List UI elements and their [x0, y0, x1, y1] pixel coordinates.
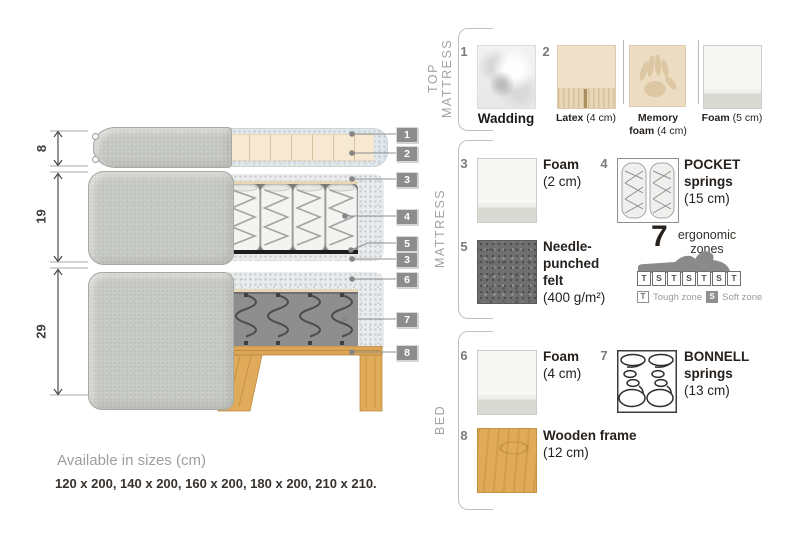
pocket-label-line2: springs	[684, 173, 740, 190]
foam-5cm-caption: Foam (5 cm)	[692, 112, 772, 125]
foam-2cm-image	[477, 158, 537, 223]
foam-4cm-text: Foam (4 cm)	[543, 348, 581, 382]
legend-num-wood: 8	[456, 428, 472, 443]
memory-foam-label-line1: Memory	[638, 112, 678, 124]
pocket-label-line1: POCKET	[684, 156, 740, 173]
foam-2cm-size: (2 cm)	[543, 173, 581, 190]
latex-size: (4 cm)	[586, 112, 616, 124]
felt-label-line2: punched	[543, 255, 605, 272]
zone-legend: T Tough zone S Soft zone	[637, 291, 762, 303]
wadding-caption: Wadding	[460, 111, 552, 126]
ergonomic-word1: ergonomic	[678, 228, 736, 242]
legend-num-foam2: 3	[456, 156, 472, 171]
dimension-mattress-height: 19	[34, 209, 49, 223]
bonnell-springs-cutaway	[228, 292, 358, 346]
felt-size: (400 g/m²)	[543, 289, 605, 306]
legend-num-bonnell: 7	[596, 348, 612, 363]
foam-4cm-label: Foam	[543, 348, 581, 365]
callout-7: 7	[396, 312, 418, 328]
zone-1: T	[637, 271, 651, 286]
pocket-springs-text: POCKET springs (15 cm)	[684, 156, 740, 207]
zone-6: S	[712, 271, 726, 286]
available-sizes-title: Available in sizes (cm)	[57, 452, 206, 469]
callout-1: 1	[396, 127, 418, 143]
foam-4cm-image	[477, 350, 537, 415]
dimension-top-mattress-height: 8	[34, 145, 49, 152]
needle-punched-felt-image	[477, 240, 537, 304]
mattress-fabric-cover	[88, 171, 234, 265]
bonnell-springs-image	[617, 350, 677, 413]
mattress-felt-layer-line	[228, 250, 358, 254]
section-label-top-mattress: TOP MATTRESS	[431, 24, 449, 132]
foam-5cm-image	[703, 45, 762, 109]
callout-2: 2	[396, 146, 418, 162]
latex-notch	[584, 89, 587, 108]
zone-3: T	[667, 271, 681, 286]
bed-construction-infographic: 8 19 29 1 2 3 4 5 3 6 7 8 TOP MATTRESS M…	[0, 0, 800, 533]
felt-label-line1: Needle-	[543, 238, 605, 255]
zone-2: S	[652, 271, 666, 286]
zone-4: S	[682, 271, 696, 286]
wooden-frame-image	[477, 428, 537, 493]
bonnell-size: (13 cm)	[684, 382, 749, 399]
legend-num-latex: 2	[538, 44, 554, 59]
divider-memory-foam	[698, 40, 699, 104]
section-label-bed: BED	[431, 331, 449, 508]
top-mattress-stud	[92, 156, 99, 163]
memory-foam-image	[629, 45, 686, 107]
memory-foam-caption: Memory foam (4 cm)	[618, 112, 698, 138]
pocket-size: (15 cm)	[684, 190, 740, 207]
dimension-bed-height: 29	[34, 324, 49, 338]
callout-5: 5	[396, 236, 418, 252]
legend-num-felt: 5	[456, 239, 472, 254]
bonnell-label-line2: springs	[684, 365, 749, 382]
wooden-frame-size: (12 cm)	[543, 444, 637, 461]
callout-3b: 3	[396, 252, 418, 268]
bed-fabric-cover	[88, 272, 234, 410]
tough-zone-key: T	[637, 291, 649, 303]
foam-2cm-text: Foam (2 cm)	[543, 156, 581, 190]
callout-4: 4	[396, 209, 418, 225]
needle-punched-felt-text: Needle- punched felt (400 g/m²)	[543, 238, 605, 306]
section-label-mattress: MATTRESS	[431, 140, 449, 317]
latex-label: Latex	[556, 112, 583, 124]
bonnell-label-line1: BONNELL	[684, 348, 749, 365]
pocket-springs-cutaway	[228, 184, 358, 252]
wooden-frame-label: Wooden frame	[543, 427, 637, 444]
bonnell-springs-text: BONNELL springs (13 cm)	[684, 348, 749, 399]
top-mattress-stud	[92, 133, 99, 140]
zone-7: T	[727, 271, 741, 286]
divider-latex-memory	[623, 40, 624, 104]
latex-caption: Latex (4 cm)	[546, 112, 626, 125]
soft-zone-label: Soft zone	[722, 292, 762, 303]
wadding-label: Wadding	[478, 111, 535, 126]
wadding-image	[477, 45, 536, 109]
foam-2cm-label: Foam	[543, 156, 581, 173]
legend-num-pocket: 4	[596, 156, 612, 171]
memory-foam-label-line2: foam	[629, 125, 654, 137]
pocket-springs-image	[617, 158, 679, 223]
memory-foam-size: (4 cm)	[657, 125, 687, 137]
top-mattress-latex-blocks	[228, 134, 374, 161]
available-sizes-values: 120 x 200, 140 x 200, 160 x 200, 180 x 2…	[55, 476, 377, 491]
legend-num-wadding: 1	[456, 44, 472, 59]
felt-label-line3: felt	[543, 272, 605, 289]
callout-3: 3	[396, 172, 418, 188]
foam-5cm-label: Foam	[702, 112, 730, 124]
zone-5: T	[697, 271, 711, 286]
callout-6: 6	[396, 272, 418, 288]
legend-num-foam4: 6	[456, 348, 472, 363]
foam-4cm-size: (4 cm)	[543, 365, 581, 382]
callout-8: 8	[396, 345, 418, 361]
tough-zone-label: Tough zone	[653, 292, 702, 303]
zone-row: T S T S T S T	[637, 271, 741, 286]
latex-image	[557, 45, 616, 109]
wooden-frame-text: Wooden frame (12 cm)	[543, 427, 637, 461]
top-mattress-fabric-cover	[93, 127, 232, 168]
soft-zone-key: S	[706, 291, 718, 303]
foam-5cm-size: (5 cm)	[733, 112, 763, 124]
